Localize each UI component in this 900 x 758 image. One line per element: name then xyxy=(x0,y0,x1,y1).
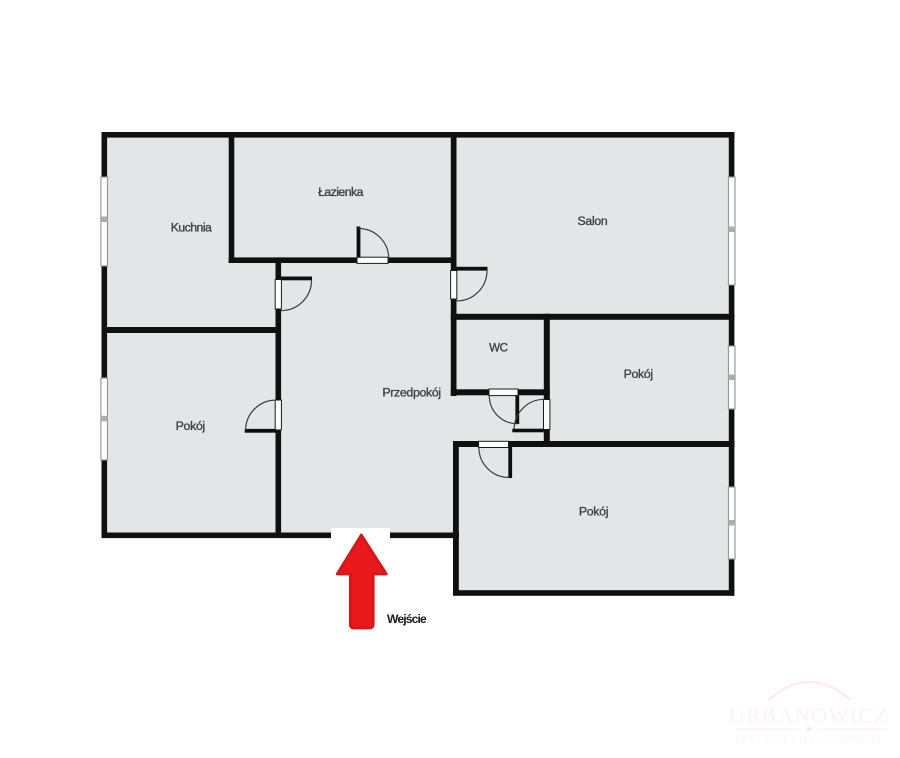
svg-text:CENTRUM NIERUCHOMOŚCI: CENTRUM NIERUCHOMOŚCI xyxy=(735,734,883,744)
svg-text:Pokój: Pokój xyxy=(579,504,608,518)
svg-text:Salon: Salon xyxy=(578,214,608,228)
svg-text:Łazienka: Łazienka xyxy=(318,185,364,199)
svg-text:Wejście: Wejście xyxy=(387,612,427,626)
svg-text:Przedpokój: Przedpokój xyxy=(382,385,441,399)
svg-text:Pokój: Pokój xyxy=(624,367,653,381)
svg-text:WC: WC xyxy=(489,342,507,355)
svg-text:Kuchnia: Kuchnia xyxy=(171,221,212,235)
svg-text:Pokój: Pokój xyxy=(176,419,205,433)
svg-text:URBANOWICZ: URBANOWICZ xyxy=(729,704,889,728)
